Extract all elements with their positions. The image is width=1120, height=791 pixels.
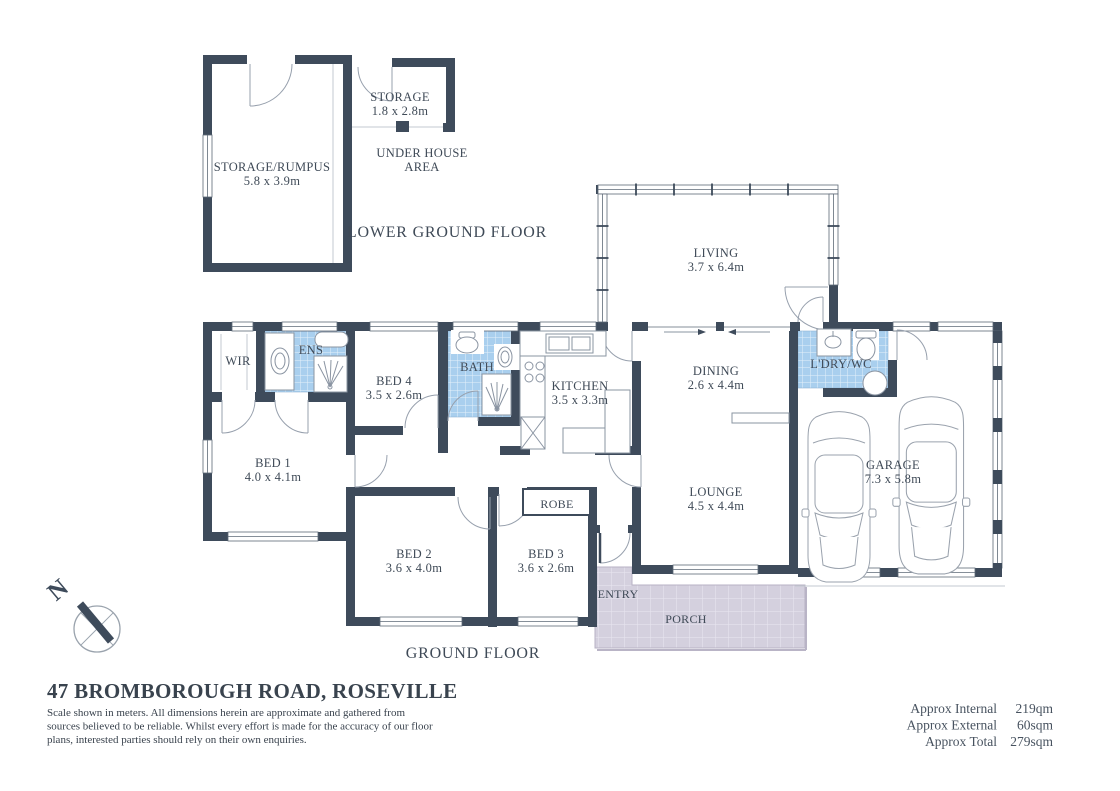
compass-needle [80,604,111,641]
arrow-left-icon [728,329,736,335]
ground-floor-title: GROUND FLOOR [406,645,541,662]
laundry-basin-icon [863,371,887,395]
lounge-dim: 4.5 x 4.4m [688,499,744,513]
approx-total-value: 279sqm [1010,734,1053,749]
disclaimer-line-1: Scale shown in meters. All dimensions he… [47,707,405,719]
garage-label: GARAGE [866,458,920,472]
kitchen-label: KITCHEN [552,379,609,393]
arrow-right-icon [698,329,706,335]
bed3-dim: 3.6 x 2.6m [518,561,574,575]
laundry-label: L'DRY/WC [810,357,872,371]
compass-north-label: N [43,574,74,606]
dining-label: DINING [693,364,739,378]
bath-sink-icon [498,347,512,367]
bath-label: BATH [460,360,494,374]
laundry-toilet-icon [856,331,876,338]
entry-label: ENTRY [598,587,639,601]
bed1-label: BED 1 [255,456,291,470]
under-house-label-1: UNDER HOUSE [376,146,467,160]
ens-vanity [265,333,294,390]
dining-shelf [732,413,789,423]
kitchen-bench-right [605,390,630,453]
bed4-label: BED 4 [376,374,412,388]
approx-total-label: Approx Total [925,734,997,749]
living-label: LIVING [694,246,739,260]
storage-dim: 1.8 x 2.8m [372,104,428,118]
porch-label: PORCH [665,612,707,626]
floor-plan: N STORAGE/RUMPUS 5.8 x 3.9m STORAGE 1.8 … [0,0,1120,791]
storage-rumpus-dim: 5.8 x 3.9m [244,174,300,188]
bed4-dim: 3.5 x 2.6m [366,388,422,402]
ens-label: ENS [299,343,324,357]
storage-rumpus-label: STORAGE/RUMPUS [214,160,331,174]
disclaimer-line-3: plans, interested parties should rely on… [47,734,307,746]
bed1-dim: 4.0 x 4.1m [245,470,301,484]
laundry-tub [817,329,851,356]
approx-internal-label: Approx Internal [910,701,997,716]
garage-dim: 7.3 x 5.8m [865,472,921,486]
bed2-dim: 3.6 x 4.0m [386,561,442,575]
under-house-label-2: AREA [404,160,439,174]
porch-tiles [595,567,805,648]
lower-ground-floor-title: LOWER GROUND FLOOR [347,224,547,241]
car-left [802,412,876,582]
bed2-label: BED 2 [396,547,432,561]
wir-label: WIR [225,354,251,368]
property-address: 47 BROMBOROUGH ROAD, ROSEVILLE [47,679,457,703]
bed3-label: BED 3 [528,547,564,561]
approx-external-value: 60sqm [1017,718,1054,733]
storage-label: STORAGE [370,90,430,104]
approx-internal-value: 219qm [1015,701,1053,716]
lounge-label: LOUNGE [689,485,742,499]
living-dim: 3.7 x 6.4m [688,260,744,274]
kitchen-dim: 3.5 x 3.3m [552,393,608,407]
robe-label: ROBE [540,497,573,511]
disclaimer-line-2: sources believed to be reliable. Whilst … [47,721,433,733]
compass: N [43,574,120,652]
area-summary: Approx Internal 219qm Approx External 60… [907,701,1054,749]
footer: 47 BROMBOROUGH ROAD, ROSEVILLE Scale sho… [47,679,1053,749]
kitchen-bench-bottom [563,428,607,453]
approx-external-label: Approx External [907,718,998,733]
dining-dim: 2.6 x 4.4m [688,378,744,392]
